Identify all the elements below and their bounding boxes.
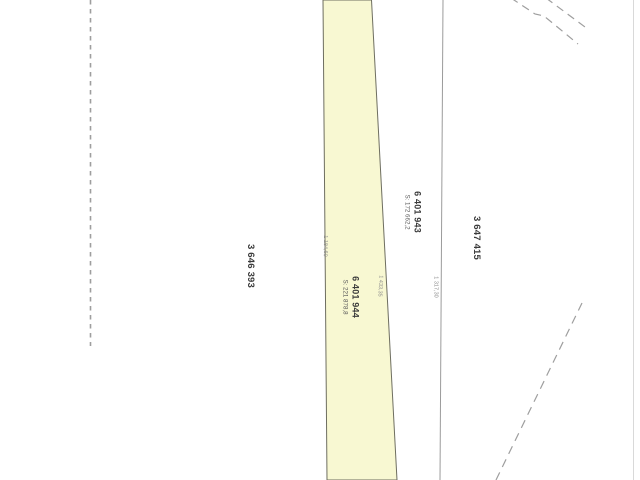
lot-area-6401944: S: 221 878,8 [342,279,349,315]
northeast-dashed-line-outer [511,0,578,44]
cadastral-plan: 3 646 393 6 401 943 S: 172 662,2 6 401 9… [0,0,640,480]
plan-drawing: 3 646 393 6 401 943 S: 172 662,2 6 401 9… [0,0,640,480]
lot-label-3647415: 3 647 415 [471,216,482,261]
dimension-east-boundary: 1 317,30 [433,276,439,297]
highlighted-parcel-shape [323,0,397,480]
dimension-strip-right-edge: 1 433,35 [376,275,383,297]
lot-label-3646393: 3 646 393 [245,244,256,288]
lot-label-6401944: 6 401 944 [351,276,361,318]
lot-label-6401943: 6 401 943 [413,191,423,233]
east-boundary-line [440,0,443,480]
northeast-dashed-line-inner [546,0,585,27]
lot-area-6401943: S: 172 662,2 [404,194,411,230]
southeast-dashed-line [496,303,582,480]
dimension-strip-left-edge: 1 184,60 [322,235,328,256]
